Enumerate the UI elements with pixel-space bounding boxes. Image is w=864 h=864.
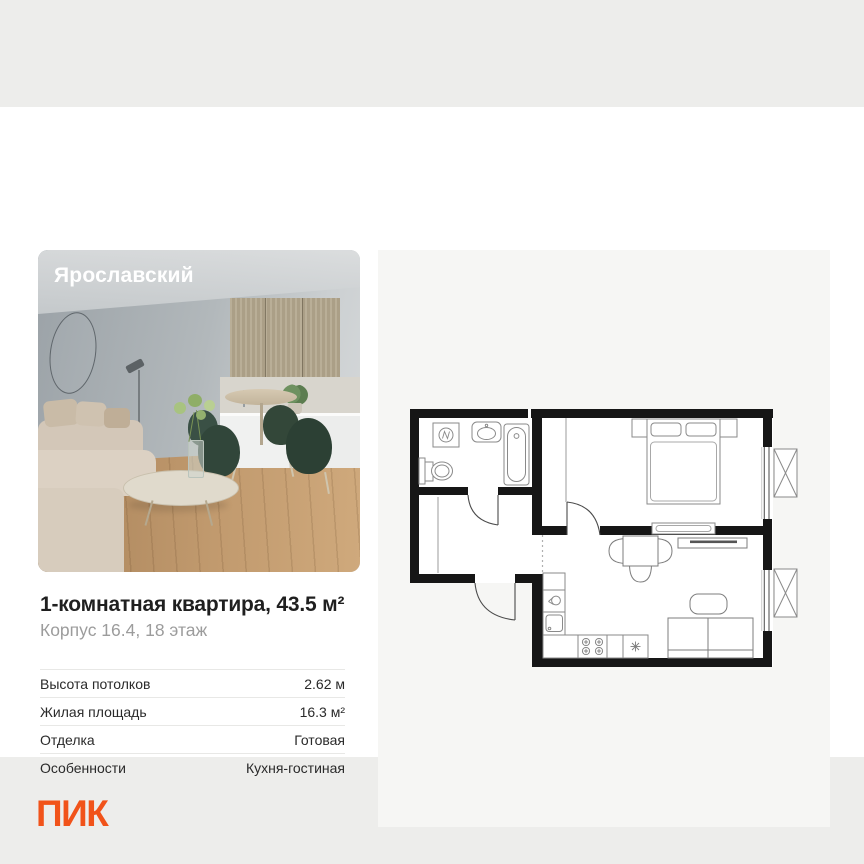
page-background: { "page": { "background_color": "#ededeb… [0,0,864,864]
spec-label: Высота потолков [40,676,150,692]
apartment-photo: Ярославский [38,250,360,572]
spec-row-ceiling-height: Высота потолков 2.62 м [40,669,345,697]
photo-flower [196,410,206,420]
spec-label: Отделка [40,732,95,748]
photo-flower [174,402,186,414]
listing-subtitle: Корпус 16.4, 18 этаж [40,620,207,641]
balcony-icon [774,449,797,617]
sofa-icon [668,618,753,658]
photo-green-chair [198,425,240,477]
photo-coffee-table [123,470,239,506]
photo-green-chair [286,418,332,474]
project-name-label: Ярославский [54,264,194,288]
tv-stand-icon [652,523,715,534]
photo-sofa-pillow [75,401,107,427]
spec-label: Особенности [40,760,126,776]
photo-sofa-pillow [104,408,130,428]
spec-value: Кухня-гостиная [246,760,345,776]
photo-flower [188,394,202,407]
pik-logo: ПИК [36,793,107,835]
spec-row-finishing: Отделка Готовая [40,725,345,753]
dishwasher-sink-icon [546,615,563,632]
photo-sofa-pillow [43,398,80,427]
listing-card: Ярославский [0,107,864,757]
tv-stand-icon [678,538,747,548]
photo-upper-cabinets [230,298,340,379]
spec-row-features: Особенности Кухня-гостиная [40,753,345,781]
spec-label: Жилая площадь [40,704,147,720]
fridge-snowflake-icon [631,642,641,652]
floor-plan [400,402,805,674]
spec-row-living-area: Жилая площадь 16.3 м² [40,697,345,725]
photo-vase [188,440,204,478]
spec-value: 2.62 м [304,676,345,692]
sink-icon [472,422,501,442]
spec-value: Готовая [294,732,345,748]
photo-flower [204,400,215,411]
bathtub-icon [504,424,529,485]
washing-machine-icon [433,423,459,447]
spec-value: 16.3 м² [300,704,345,720]
listing-title: 1-комнатная квартира, 43.5 м² [40,593,344,617]
double-bed-icon [647,419,720,504]
coffee-table-icon [690,594,727,614]
photo-sofa-chaise [38,488,124,572]
specs-table: Высота потолков 2.62 м Жилая площадь 16.… [40,669,345,781]
